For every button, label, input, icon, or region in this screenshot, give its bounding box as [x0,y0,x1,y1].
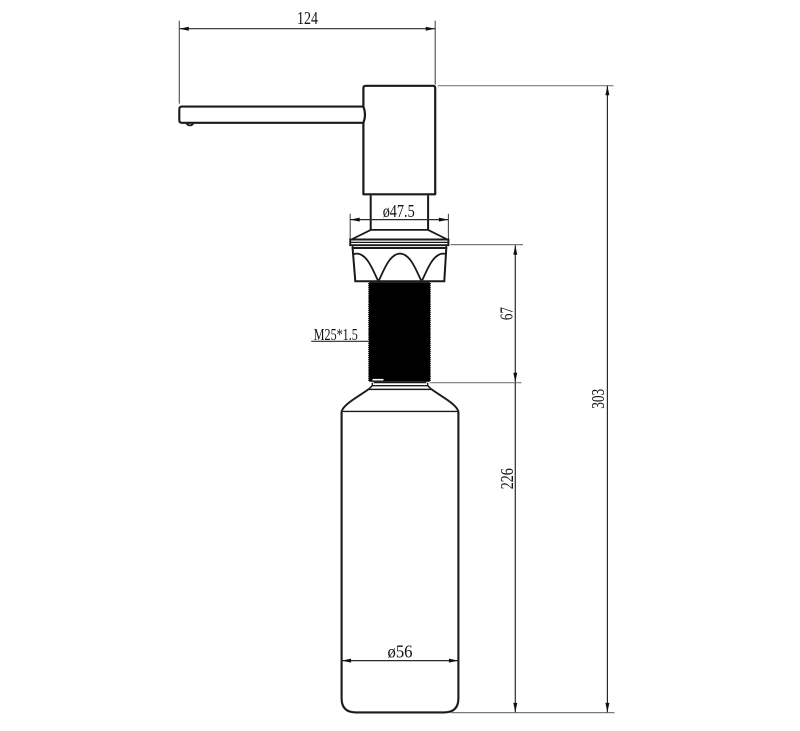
svg-text:ø56: ø56 [388,642,413,662]
svg-text:M25*1.5: M25*1.5 [314,325,358,344]
svg-text:124: 124 [297,8,318,28]
svg-text:226: 226 [497,468,517,489]
svg-text:ø47.5: ø47.5 [383,201,415,221]
svg-text:303: 303 [588,389,608,409]
svg-text:67: 67 [497,307,517,320]
